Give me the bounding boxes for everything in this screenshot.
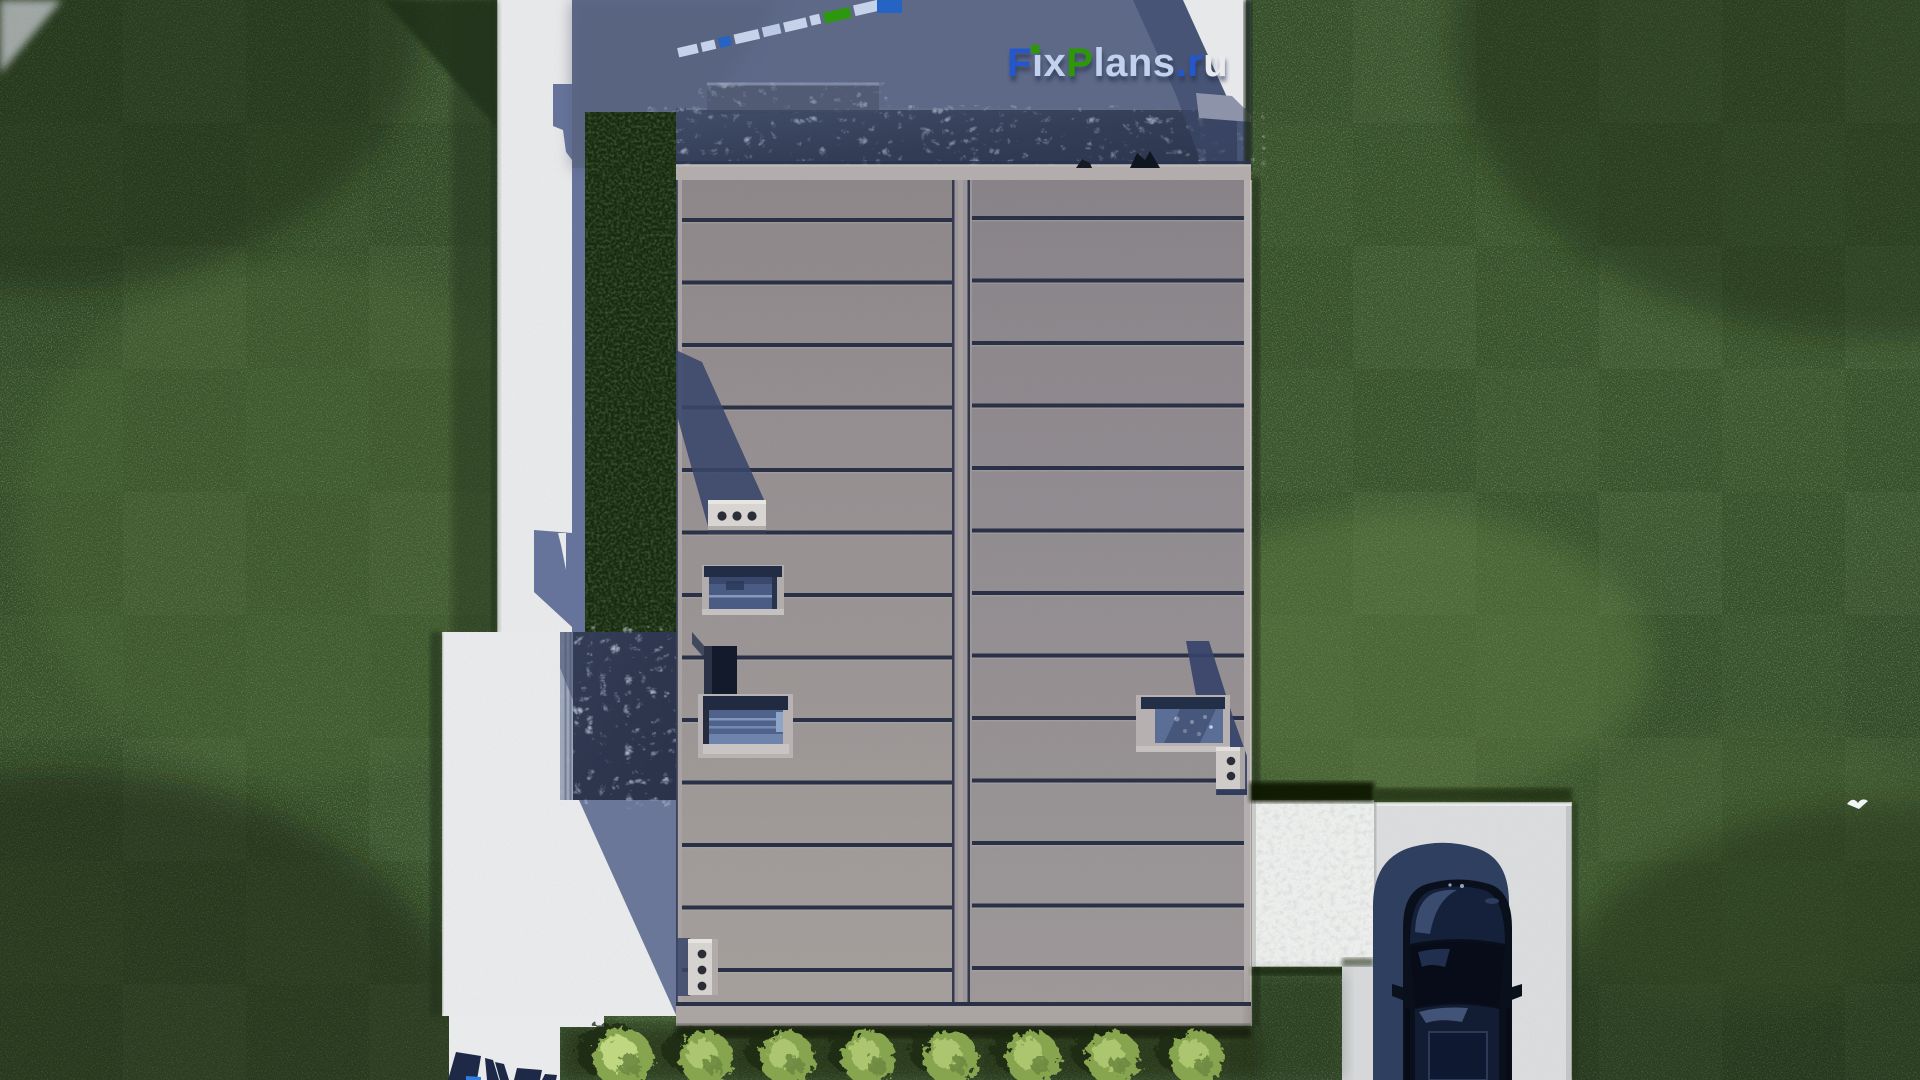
- svg-text:FıxPlans.ru: FıxPlans.ru: [1007, 41, 1228, 85]
